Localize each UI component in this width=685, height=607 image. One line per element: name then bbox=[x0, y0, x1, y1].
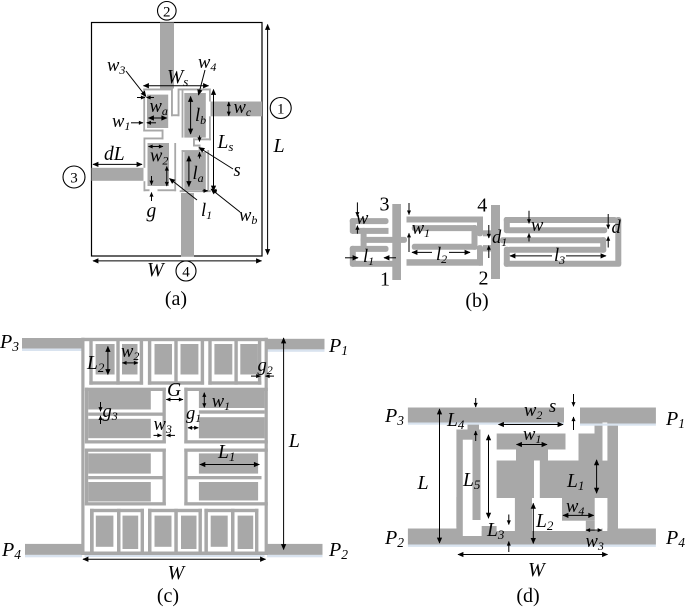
svg-text:Ws: Ws bbox=[167, 67, 188, 89]
svg-text:s: s bbox=[234, 161, 241, 181]
svg-text:w2: w2 bbox=[524, 401, 542, 422]
svg-text:P1: P1 bbox=[665, 408, 685, 431]
svg-text:wc: wc bbox=[234, 98, 252, 119]
svg-text:L: L bbox=[417, 472, 429, 494]
svg-text:P4: P4 bbox=[665, 527, 685, 550]
svg-text:W: W bbox=[168, 562, 187, 584]
svg-text:W: W bbox=[528, 559, 547, 581]
svg-text:g2: g2 bbox=[258, 356, 273, 377]
svg-text:w: w bbox=[356, 209, 369, 229]
svg-text:w: w bbox=[531, 216, 544, 236]
svg-text:4: 4 bbox=[477, 195, 487, 217]
svg-text:P4: P4 bbox=[1, 539, 21, 562]
svg-text:(b): (b) bbox=[465, 290, 488, 312]
svg-text:l1: l1 bbox=[201, 201, 212, 222]
svg-text:P2: P2 bbox=[328, 539, 348, 562]
svg-text:L3: L3 bbox=[486, 520, 505, 542]
svg-text:2: 2 bbox=[479, 268, 489, 290]
svg-text:W: W bbox=[147, 259, 166, 281]
svg-text:3: 3 bbox=[380, 194, 390, 216]
svg-text:1: 1 bbox=[380, 269, 390, 291]
svg-text:dL: dL bbox=[104, 144, 125, 165]
svg-text:2: 2 bbox=[163, 4, 171, 20]
svg-text:w3: w3 bbox=[107, 56, 125, 77]
svg-text:P2: P2 bbox=[384, 527, 404, 550]
svg-text:g: g bbox=[147, 201, 157, 222]
svg-text:P1: P1 bbox=[328, 335, 348, 358]
svg-text:P3: P3 bbox=[0, 331, 19, 354]
svg-text:(d): (d) bbox=[516, 585, 539, 607]
svg-text:w3: w3 bbox=[154, 415, 172, 436]
svg-text:(c): (c) bbox=[157, 585, 179, 607]
svg-text:wb: wb bbox=[239, 206, 257, 227]
svg-text:L: L bbox=[288, 430, 300, 452]
svg-text:(a): (a) bbox=[165, 288, 187, 310]
svg-text:w1: w1 bbox=[523, 425, 541, 446]
svg-text:L1: L1 bbox=[217, 442, 235, 464]
svg-text:L: L bbox=[273, 135, 285, 157]
svg-text:G: G bbox=[167, 380, 181, 401]
svg-text:w1: w1 bbox=[112, 112, 130, 133]
svg-text:L2: L2 bbox=[535, 511, 554, 533]
svg-text:4: 4 bbox=[182, 265, 190, 281]
svg-text:w4: w4 bbox=[198, 53, 216, 74]
svg-text:s: s bbox=[549, 397, 556, 417]
svg-text:Ls: Ls bbox=[217, 132, 234, 154]
svg-text:1: 1 bbox=[277, 102, 285, 118]
svg-text:3: 3 bbox=[70, 171, 78, 187]
svg-text:d: d bbox=[612, 218, 622, 238]
svg-text:P3: P3 bbox=[384, 405, 404, 428]
